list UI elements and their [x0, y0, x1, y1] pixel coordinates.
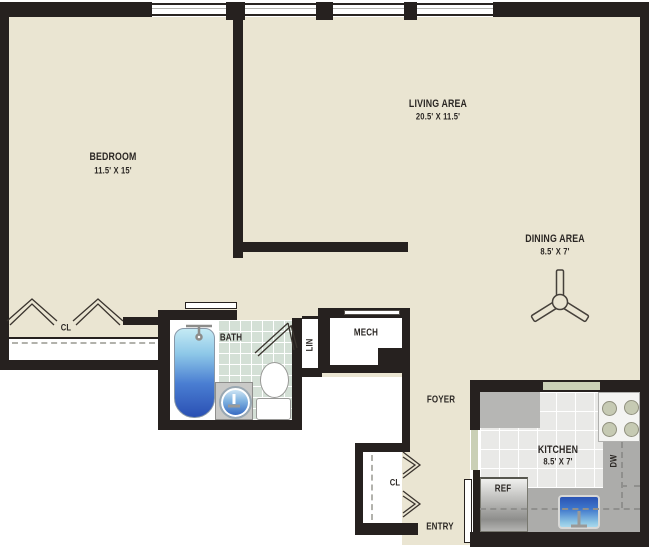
- dining-area-label: DINING AREA: [525, 233, 585, 245]
- dishwasher-label: DW: [609, 455, 620, 468]
- door-swing-icon: [255, 323, 291, 356]
- tub-faucet-icon: [186, 326, 212, 334]
- tub-drain: [197, 335, 202, 340]
- bedroom-label: BEDROOM: [89, 151, 136, 163]
- bifold-closet-door-icon: [76, 304, 120, 325]
- foyer-label: FOYER: [427, 395, 455, 406]
- floor-plan: BEDROOM 11.5' X 15' LIVING AREA 20.5' X …: [0, 0, 649, 550]
- ceiling-fan-icon: [528, 266, 594, 334]
- kitchen-dimensions: 8.5' X 7': [543, 457, 572, 468]
- living-area-label: LIVING AREA: [409, 98, 467, 110]
- bedroom-closet-label: CL: [61, 323, 71, 334]
- linen-closet-label: LIN: [305, 339, 316, 352]
- bifold-closet-door-icon: [73, 299, 123, 321]
- bifold-closet-door-icon: [403, 452, 420, 478]
- kitchen-label: KITCHEN: [538, 444, 578, 456]
- kitchen-faucet-icon: [571, 511, 587, 526]
- bifold-closet-door-icon: [10, 304, 54, 325]
- bath-label: BATH: [220, 333, 242, 344]
- mech-label: MECH: [354, 328, 378, 339]
- living-area-dimensions: 20.5' X 11.5': [416, 112, 460, 123]
- foyer-closet-label: CL: [390, 478, 400, 489]
- dining-area-dimensions: 8.5' X 7': [540, 247, 569, 258]
- refrigerator-label: REF: [495, 484, 511, 495]
- bifold-closet-door-icon: [403, 491, 420, 517]
- bifold-closet-door-icon: [7, 299, 57, 321]
- entry-label: ENTRY: [426, 522, 454, 533]
- bedroom-dimensions: 11.5' X 15': [94, 166, 132, 177]
- door-swing-icon: [288, 323, 297, 350]
